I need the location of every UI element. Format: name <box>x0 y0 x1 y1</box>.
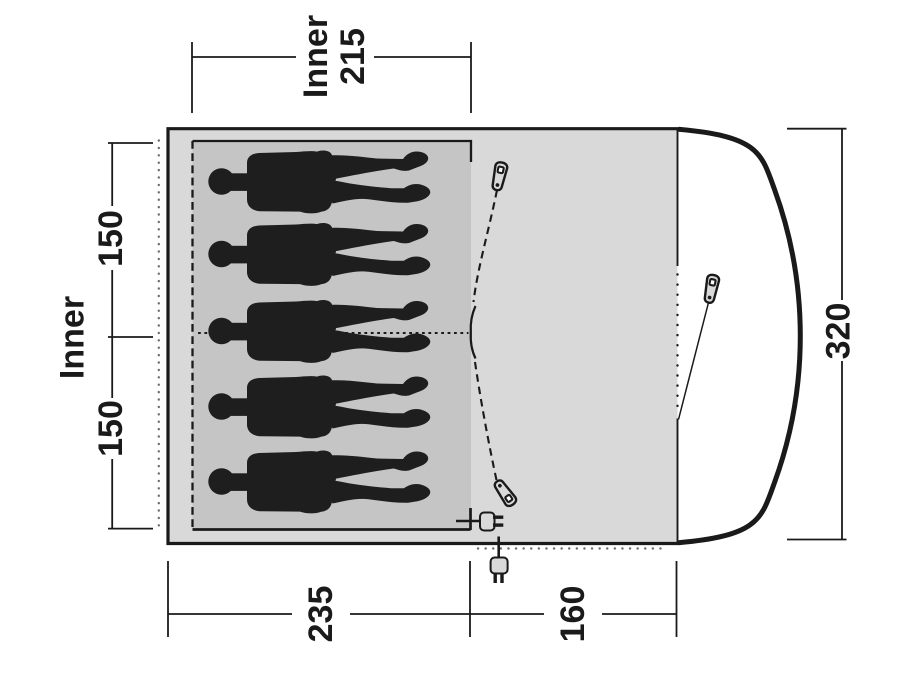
svg-text:150: 150 <box>92 210 130 267</box>
svg-text:160: 160 <box>554 586 592 643</box>
svg-text:215: 215 <box>334 28 372 85</box>
svg-text:Inner: Inner <box>297 15 335 98</box>
svg-text:320: 320 <box>820 303 858 360</box>
svg-text:235: 235 <box>302 586 340 643</box>
svg-text:Inner: Inner <box>53 296 91 379</box>
svg-text:150: 150 <box>92 400 130 457</box>
